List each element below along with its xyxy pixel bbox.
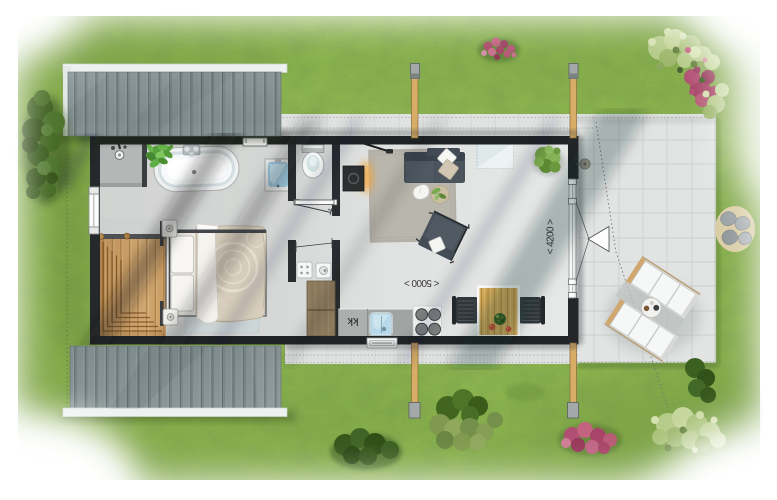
svg-text:< 5000 >: < 5000 > [404,277,439,288]
svg-text:kk: kk [347,315,359,327]
